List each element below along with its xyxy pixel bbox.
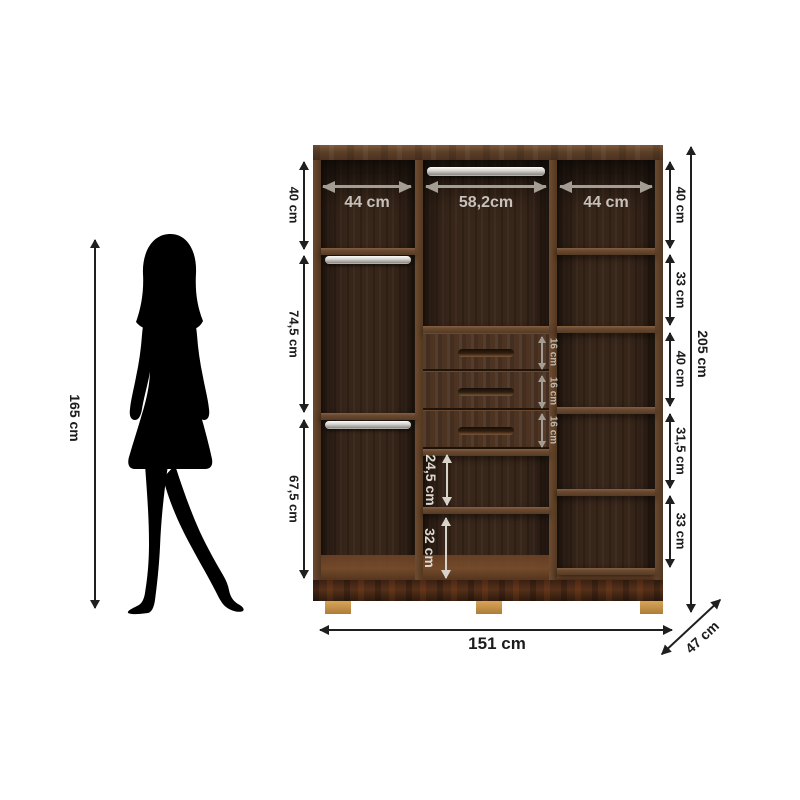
- compartment-left: [321, 160, 415, 580]
- right-side-panel: [655, 160, 663, 580]
- shelf-right-5: [557, 568, 655, 575]
- drawer-handle-3: [458, 427, 514, 435]
- width-arrow-left-section: [323, 185, 411, 188]
- center-height-label-2: 32 cm: [422, 528, 438, 568]
- width-label-center-section: 58,2cm: [459, 194, 513, 212]
- drawer-handle-1: [458, 349, 514, 357]
- shelf-left-1: [321, 248, 415, 255]
- drawer-height-label-3: 16 cm: [548, 416, 559, 444]
- foot-right: [640, 601, 663, 614]
- hanging-rod-left-1: [325, 256, 411, 264]
- left-side-panel: [313, 160, 321, 580]
- drawer-3: [423, 410, 549, 449]
- drawer-2: [423, 371, 549, 410]
- right-height-arrow-4: [669, 414, 671, 488]
- right-height-label-1: 40 cm: [674, 187, 689, 224]
- center-height-arrow-2: [445, 518, 447, 578]
- left-height-arrow-3: [303, 420, 305, 578]
- interior-floor-left: [321, 555, 415, 580]
- width-arrow-center-section: [426, 185, 546, 188]
- top-panel: [313, 145, 663, 160]
- drawer-height-label-1: 16 cm: [548, 338, 559, 366]
- overall-height-arrow: [690, 147, 692, 612]
- compartment-right: [557, 160, 655, 580]
- shelf-right-4: [557, 489, 655, 496]
- product-dimension-diagram: 165 cm: [0, 0, 800, 800]
- right-height-arrow-3: [669, 333, 671, 406]
- right-height-arrow-2: [669, 255, 671, 325]
- drawer-height-arrow-2: [541, 376, 543, 408]
- hanging-rod-center: [427, 167, 545, 176]
- person-height-label: 165 cm: [67, 394, 83, 441]
- left-height-label-1: 40 cm: [287, 187, 302, 224]
- overall-width-label: 151 cm: [468, 634, 526, 654]
- right-height-label-4: 31,5 cm: [674, 427, 689, 475]
- overall-width-arrow: [320, 629, 672, 631]
- foot-left: [325, 601, 351, 614]
- right-height-arrow-5: [669, 496, 671, 567]
- drawer-height-arrow-3: [541, 414, 543, 447]
- person-height-arrow: [94, 240, 96, 608]
- drawer-height-label-2: 16 cm: [548, 377, 559, 405]
- shelf-right-2: [557, 326, 655, 333]
- partition-right: [549, 160, 557, 580]
- shelf-center-low: [423, 507, 549, 514]
- drawer-height-arrow-1: [541, 337, 543, 369]
- shelf-left-2: [321, 413, 415, 420]
- center-height-arrow-1: [446, 455, 448, 505]
- width-label-left-section: 44 cm: [344, 194, 389, 212]
- shelf-right-3: [557, 407, 655, 414]
- width-label-right-section: 44 cm: [583, 194, 628, 212]
- center-height-label-1: 24,5 cm: [423, 454, 439, 505]
- partition-left: [415, 160, 423, 580]
- silhouette-right-leg: [163, 465, 244, 612]
- width-arrow-right-section: [560, 185, 652, 188]
- shelf-right-1: [557, 248, 655, 255]
- foot-center: [476, 601, 502, 614]
- right-height-label-5: 33 cm: [674, 513, 689, 550]
- shelf-center-top: [423, 326, 549, 333]
- left-height-arrow-1: [303, 162, 305, 249]
- left-height-label-3: 67,5 cm: [287, 475, 302, 523]
- right-height-arrow-1: [669, 162, 671, 248]
- drawer-handle-2: [458, 388, 514, 396]
- drawer-1: [423, 333, 549, 371]
- right-height-label-3: 40 cm: [674, 351, 689, 388]
- left-height-label-2: 74,5 cm: [287, 310, 302, 358]
- left-height-arrow-2: [303, 256, 305, 412]
- right-height-label-2: 33 cm: [674, 272, 689, 309]
- overall-height-label: 205 cm: [695, 330, 711, 377]
- base-board: [313, 580, 663, 601]
- silhouette-left-leg: [128, 465, 168, 614]
- hanging-rod-left-2: [325, 421, 411, 429]
- wardrobe: [313, 145, 663, 615]
